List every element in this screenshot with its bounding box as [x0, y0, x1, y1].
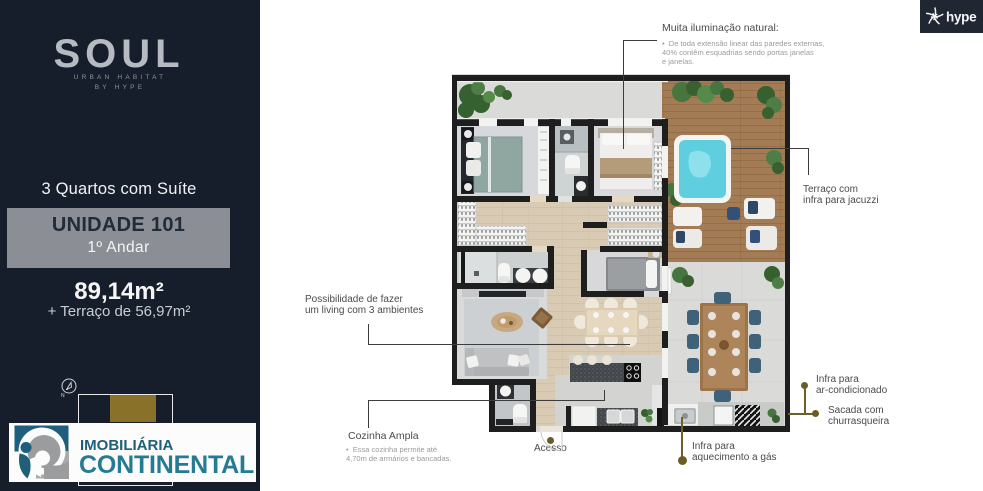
- svg-text:N: N: [61, 393, 65, 399]
- svg-text:hype: hype: [946, 10, 977, 25]
